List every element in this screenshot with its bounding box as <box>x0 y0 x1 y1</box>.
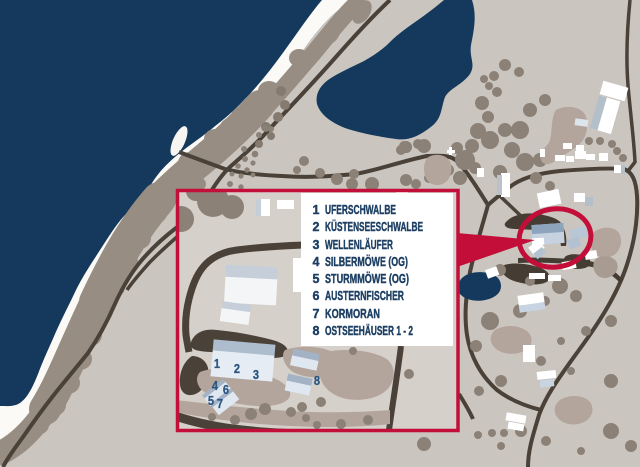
svg-text:SILBERMÖWE (OG): SILBERMÖWE (OG) <box>325 254 408 269</box>
svg-text:AUSTERNFISCHER: AUSTERNFISCHER <box>325 289 404 303</box>
svg-text:STURMMÖWE (OG): STURMMÖWE (OG) <box>325 271 409 286</box>
svg-text:1: 1 <box>214 356 220 371</box>
svg-text:1: 1 <box>313 203 320 217</box>
svg-text:7: 7 <box>313 307 320 321</box>
svg-text:KÜSTENSEESCHWALBE: KÜSTENSEESCHWALBE <box>325 219 423 234</box>
svg-text:2: 2 <box>234 361 240 376</box>
svg-text:5: 5 <box>208 393 214 408</box>
svg-text:6: 6 <box>313 289 320 303</box>
svg-text:5: 5 <box>313 272 320 286</box>
svg-text:4: 4 <box>313 255 320 269</box>
svg-text:6: 6 <box>223 382 229 397</box>
svg-text:3: 3 <box>313 238 320 252</box>
svg-text:2: 2 <box>313 220 320 234</box>
svg-text:WELLENLÄUFER: WELLENLÄUFER <box>325 237 393 252</box>
svg-text:OSTSEEHÄUSER 1 - 2: OSTSEEHÄUSER 1 - 2 <box>325 323 413 338</box>
svg-text:8: 8 <box>313 324 320 338</box>
svg-text:4: 4 <box>212 378 218 393</box>
svg-text:7: 7 <box>217 396 223 411</box>
svg-text:UFERSCHWALBE: UFERSCHWALBE <box>325 203 396 217</box>
svg-text:3: 3 <box>253 367 259 382</box>
svg-text:KORMORAN: KORMORAN <box>325 307 380 321</box>
svg-text:8: 8 <box>314 373 320 388</box>
